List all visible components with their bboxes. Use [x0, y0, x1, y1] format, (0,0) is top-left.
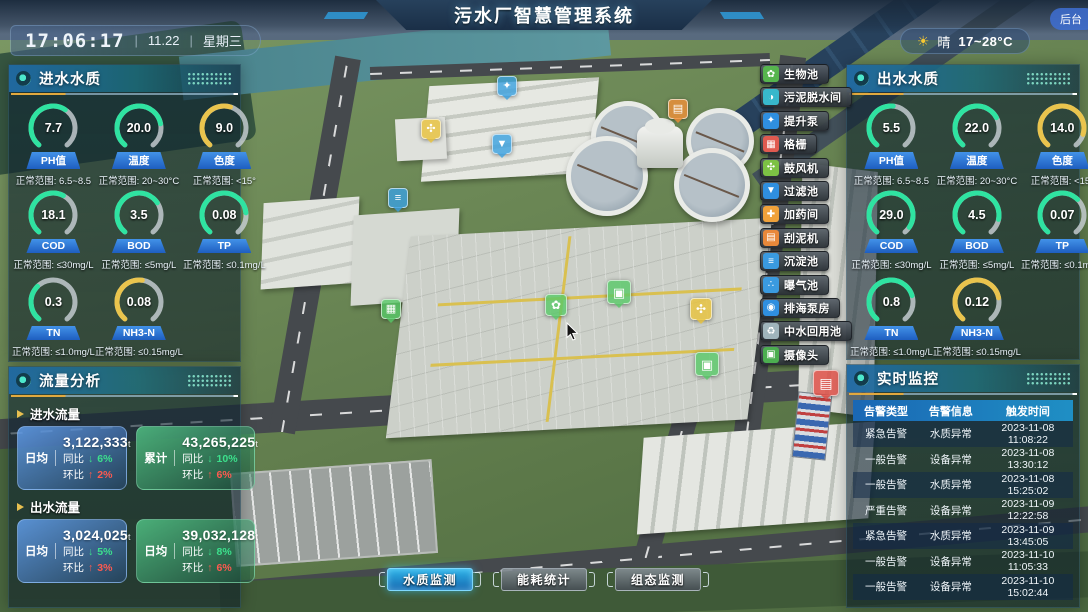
camera-marker-icon-2[interactable]: ▣ [695, 352, 719, 376]
gauge-normal-range: 正常范围: ≤0.15mg/L [933, 344, 1021, 358]
temperature-range: 17~28°C [958, 34, 1013, 49]
app-title: 污水厂智慧管理系统 [454, 2, 634, 28]
gauge-value: 7.7 [27, 102, 79, 154]
gauge-value: 20.0 [113, 102, 165, 154]
alarm-time: 2023-11-10 15:02:44 [983, 575, 1073, 599]
gauge: 0.08 NH3-N 正常范围: ≤0.15mg/L [95, 276, 183, 363]
gauge-ring: 18.1 [27, 189, 79, 241]
gauge-normal-range: 正常范围: ≤0.1mg/L [1021, 257, 1088, 271]
separator: | [135, 33, 138, 48]
alarm-info: 水质异常 [919, 528, 983, 543]
panel-header-icon [16, 373, 31, 388]
dosing-room-icon: ✚ [763, 206, 779, 222]
gauge-label: 色度 [197, 152, 251, 169]
arrow-down-icon: ↓ [207, 453, 212, 465]
panel-header-dots [187, 374, 233, 387]
filter-pool-icon: ▼ [763, 183, 779, 199]
clarifier-tank [566, 136, 648, 216]
flow-stat: 同比↓8% [182, 544, 246, 559]
center-hub-building [637, 126, 683, 168]
alarm-row: 紧急告警 水质异常 2023-11-08 11:08:22 [853, 421, 1073, 447]
arrow-up-icon: ↑ [88, 469, 93, 481]
gauge: 20.0 温度 正常范围: 20~30°C [95, 102, 183, 189]
panel-title: 实时监控 [877, 368, 939, 389]
facility-button-dosing-room[interactable]: ✚ 加药间 [760, 204, 829, 224]
panel-header: 流量分析 [9, 367, 240, 394]
gauge-label: PH值 [26, 152, 80, 169]
backstage-button[interactable]: 后台 [1050, 8, 1088, 30]
facility-button-filter-pool[interactable]: ▼ 过滤池 [760, 181, 829, 201]
alarm-type: 一般告警 [853, 579, 919, 594]
flow-stat: 同比↓10% [182, 451, 246, 466]
alarm-type: 紧急告警 [853, 528, 919, 543]
facility-button-bio-pool[interactable]: ✿ 生物池 [760, 64, 829, 84]
weather-widget: ☀ 晴 17~28°C [900, 28, 1030, 54]
flow-card-label: 日均 [144, 543, 175, 559]
flow-value: 43,265,225t [182, 434, 246, 450]
flow-stat: 环比↑6% [182, 560, 246, 575]
gauge-value: 0.08 [198, 189, 250, 241]
facility-button-stack: ✿ 生物池◑ 污泥脱水间✦ 提升泵▦ 格栅✣ 鼓风机▼ 过滤池✚ 加药间▤ 刮泥… [760, 64, 852, 368]
outlet-quality-panel: 出水水质 5.5 PH值 正常范围: 6.5~8.5 22.0 温度 正常范围:… [846, 64, 1080, 360]
title-wing-right [720, 12, 764, 19]
flow-card: 日均 3,122,333t 同比↓6% 环比↑2% [17, 426, 127, 490]
gauge-value: 0.07 [1036, 189, 1088, 241]
alarm-time: 2023-11-09 12:22:58 [983, 498, 1073, 522]
gauge-normal-range: 正常范围: ≤0.1mg/L [183, 257, 266, 271]
alarm-time: 2023-11-08 13:30:12 [983, 447, 1073, 471]
dashboard-root: ✦✣▼▤≡▦✿▣✣▣▤ 污水厂智慧管理系统 17:06:17 | 11.22 |… [0, 0, 1088, 612]
arrow-down-icon: ↓ [88, 453, 93, 465]
facility-button-label: 沉淀池 [784, 253, 819, 269]
gauge-normal-range: 正常范围: 6.5~8.5 [854, 173, 929, 187]
facility-button-label: 摄像头 [784, 347, 819, 363]
gauge-label: COD [864, 239, 918, 253]
grid-screen-marker-icon[interactable]: ▦ [381, 299, 401, 319]
gauge-normal-range: 正常范围: 20~30°C [99, 173, 180, 187]
gauge-label: COD [26, 239, 80, 253]
gauge-value: 0.12 [951, 276, 1003, 328]
gauge: 4.5 BOD 正常范围: ≤5mg/L [933, 189, 1021, 276]
gauge: 3.5 BOD 正常范围: ≤5mg/L [95, 189, 183, 276]
sea-pump-house-icon: ◉ [763, 300, 779, 316]
alarm-time: 2023-11-08 15:25:02 [983, 473, 1073, 497]
gauge-ring: 0.3 [27, 276, 79, 328]
facility-button-sea-pump-house[interactable]: ◉ 排海泵房 [760, 298, 840, 318]
gauge-value: 0.3 [27, 276, 79, 328]
bottom-tab[interactable]: 组态监测 [615, 568, 701, 591]
facility-button-blower[interactable]: ✣ 鼓风机 [760, 158, 829, 178]
gauge-label: 色度 [1035, 152, 1088, 169]
panel-header-icon [854, 371, 869, 386]
datetime-panel: 17:06:17 | 11.22 | 星期三 [10, 25, 261, 56]
alarm-info: 设备异常 [919, 503, 983, 518]
gauge-value: 18.1 [27, 189, 79, 241]
gauge-label: 温度 [112, 152, 166, 169]
alarm-row: 严重告警 设备异常 2023-11-09 12:22:58 [853, 498, 1073, 524]
gauge: 22.0 温度 正常范围: 20~30°C [933, 102, 1021, 189]
gauge-value: 3.5 [113, 189, 165, 241]
gauge-ring: 0.07 [1036, 189, 1088, 241]
flow-card: 日均 39,032,128t 同比↓8% 环比↑6% [136, 519, 254, 583]
mud-scraper-icon: ▤ [763, 230, 779, 246]
alarm-info: 水质异常 [919, 477, 983, 492]
gauge-normal-range: 正常范围: ≤30mg/L [851, 257, 931, 271]
bottom-tab[interactable]: 能耗统计 [501, 568, 587, 591]
flow-value: 3,122,333t [63, 434, 119, 450]
flow-stat: 同比↓6% [63, 451, 119, 466]
gauge-ring: 3.5 [113, 189, 165, 241]
facility-button-label: 刮泥机 [784, 230, 819, 246]
gauge-normal-range: 正常范围: ≤5mg/L [101, 257, 176, 271]
facility-button-lift-pump[interactable]: ✦ 提升泵 [760, 111, 829, 131]
weather-condition: 晴 [937, 32, 950, 51]
blower-marker-icon[interactable]: ✣ [421, 119, 441, 139]
gauge-normal-range: 正常范围: 20~30°C [937, 173, 1018, 187]
facility-button-label: 生物池 [784, 66, 819, 82]
realtime-monitoring-panel: 实时监控 告警类型 告警信息 触发时间 紧急告警 水质异常 2023-11-08… [846, 364, 1080, 608]
panel-title: 进水水质 [39, 68, 101, 89]
panel-header-icon [854, 71, 869, 86]
gauge-normal-range: 正常范围: ≤0.15mg/L [95, 344, 183, 358]
bottom-tab-bar: 水质监测能耗统计组态监测 [387, 568, 701, 591]
panel-header-dots [1026, 72, 1072, 85]
gauge-normal-range: 正常范围: 6.5~8.5 [16, 173, 91, 187]
gauge-ring: 7.7 [27, 102, 79, 154]
panel-header: 实时监控 [847, 365, 1079, 392]
flow-value: 3,024,025t [63, 527, 119, 543]
gauge: 0.08 TP 正常范围: ≤0.1mg/L [183, 189, 266, 276]
gauge-ring: 0.12 [951, 276, 1003, 328]
panel-header: 出水水质 [847, 65, 1079, 92]
facility-button-label: 排海泵房 [784, 300, 830, 316]
panel-header-underline [11, 395, 238, 397]
parking-lot [230, 459, 438, 567]
gauge: 9.0 色度 正常范围: <15° [183, 102, 266, 189]
flow-card-label: 日均 [25, 543, 56, 559]
alarm-info: 水质异常 [919, 426, 983, 441]
mouse-cursor [566, 322, 580, 341]
app-title-banner: 污水厂智慧管理系统 [376, 0, 712, 30]
gauge-ring: 0.8 [865, 276, 917, 328]
flow-analysis-panel: 流量分析 进水流量日均 3,122,333t 同比↓6% 环比↑2% 累计 43… [8, 366, 241, 608]
bottom-tab[interactable]: 水质监测 [387, 568, 473, 591]
triangle-icon [17, 503, 24, 511]
gauge-label: NH3-N [112, 326, 166, 340]
facility-button-sedimentation-pool[interactable]: ≡ 沉淀池 [760, 251, 829, 271]
column-alarm-info: 告警信息 [919, 403, 983, 419]
gauge-normal-range: 正常范围: ≤1.0mg/L [12, 344, 95, 358]
separator: | [189, 33, 192, 48]
panel-header-dots [187, 72, 233, 85]
inlet-quality-panel: 进水水质 7.7 PH值 正常范围: 6.5~8.5 20.0 温度 正常范围:… [8, 64, 241, 362]
clarifier-tank [674, 148, 750, 222]
gauge-label: PH值 [864, 152, 918, 169]
gauge-label: TN [26, 326, 80, 340]
gauge-ring: 0.08 [113, 276, 165, 328]
panel-title: 流量分析 [39, 370, 101, 391]
gauge-value: 9.0 [198, 102, 250, 154]
gauge-ring: 5.5 [865, 102, 917, 154]
gauge-ring: 29.0 [865, 189, 917, 241]
gauge-ring: 20.0 [113, 102, 165, 154]
arrow-up-icon: ↑ [88, 562, 93, 574]
sedimentation-pool-icon: ≡ [763, 253, 779, 269]
facility-button-label: 曝气池 [784, 277, 819, 293]
alarm-type: 一般告警 [853, 452, 919, 467]
gauge: 0.8 TN 正常范围: ≤1.0mg/L [850, 276, 933, 363]
flow-stat: 同比↓5% [63, 544, 119, 559]
alarm-type: 一般告警 [853, 477, 919, 492]
arrow-down-icon: ↓ [88, 546, 93, 558]
gauge-value: 0.08 [113, 276, 165, 328]
gauge-label: TP [197, 239, 251, 253]
blower-marker-icon-2[interactable]: ✣ [690, 298, 712, 320]
flow-card-label: 累计 [144, 450, 175, 466]
equipment-rack [792, 391, 833, 460]
bio-pool-marker-icon[interactable]: ✿ [545, 294, 567, 316]
gauge-ring: 0.08 [198, 189, 250, 241]
gauge-ring: 14.0 [1036, 102, 1088, 154]
sedimentation-marker-icon[interactable]: ≡ [388, 188, 408, 208]
filter-pool-marker-icon[interactable]: ▼ [492, 134, 512, 154]
gauge: 14.0 色度 正常范围: <15° [1021, 102, 1088, 189]
facility-button-label: 提升泵 [784, 113, 819, 129]
facility-button-water-reuse-pool[interactable]: ♻ 中水回用池 [760, 321, 852, 341]
flow-card: 日均 3,024,025t 同比↓5% 环比↑3% [17, 519, 127, 583]
alarm-table-header: 告警类型 告警信息 触发时间 [853, 400, 1073, 421]
gauge-ring: 9.0 [198, 102, 250, 154]
facility-button-label: 格栅 [784, 136, 807, 152]
alarm-type: 紧急告警 [853, 426, 919, 441]
gauge-label: 温度 [950, 152, 1004, 169]
facility-button-label: 加药间 [784, 206, 819, 222]
flow-section-label: 进水流量 [17, 404, 232, 423]
gauge-value: 4.5 [951, 189, 1003, 241]
gauge-ring: 22.0 [951, 102, 1003, 154]
gauge: 0.3 TN 正常范围: ≤1.0mg/L [12, 276, 95, 363]
flow-value: 39,032,128t [182, 527, 246, 543]
gauge-normal-range: 正常范围: <15° [193, 173, 256, 187]
alarm-type: 严重告警 [853, 503, 919, 518]
lift-pump-marker-icon[interactable]: ✦ [497, 76, 517, 96]
sun-icon: ☀ [917, 33, 930, 50]
facility-button-label: 污泥脱水间 [784, 89, 842, 105]
alarm-table: 告警类型 告警信息 触发时间 紧急告警 水质异常 2023-11-08 11:0… [847, 395, 1079, 600]
clock: 17:06:17 [25, 30, 125, 52]
title-wing-left [324, 12, 368, 19]
gauge-label: BOD [950, 239, 1004, 253]
gauge-label: BOD [112, 239, 166, 253]
alarm-row: 一般告警 设备异常 2023-11-10 11:05:33 [853, 549, 1073, 575]
flow-card: 累计 43,265,225t 同比↓10% 环比↑6% [136, 426, 254, 490]
blower-icon: ✣ [763, 160, 779, 176]
gauge-value: 0.8 [865, 276, 917, 328]
grid-screen-icon: ▦ [763, 136, 779, 152]
aeration-pool-icon: ∴ [763, 277, 779, 293]
alarm-time: 2023-11-10 11:05:33 [983, 549, 1073, 573]
alarm-time: 2023-11-09 13:45:05 [983, 524, 1073, 548]
flow-card-label: 日均 [25, 450, 56, 466]
gauge-value: 5.5 [865, 102, 917, 154]
panel-header-dots [1026, 372, 1072, 385]
facility-button-sludge-dewatering[interactable]: ◑ 污泥脱水间 [760, 87, 852, 107]
alarm-info: 设备异常 [919, 452, 983, 467]
gauge-label: TP [1035, 239, 1088, 253]
alarm-info: 设备异常 [919, 579, 983, 594]
panel-header: 进水水质 [9, 65, 240, 92]
sludge-dewatering-icon: ◑ [763, 89, 779, 105]
water-reuse-pool-icon: ♻ [763, 323, 779, 339]
date: 11.22 [148, 33, 180, 48]
flow-stat: 环比↑2% [63, 467, 119, 482]
gauge: 7.7 PH值 正常范围: 6.5~8.5 [12, 102, 95, 189]
weekday: 星期三 [203, 31, 242, 50]
camera-icon: ▣ [763, 347, 779, 363]
alarm-row: 一般告警 设备异常 2023-11-10 15:02:44 [853, 574, 1073, 600]
gauge: 0.07 TP 正常范围: ≤0.1mg/L [1021, 189, 1088, 276]
arrow-up-icon: ↑ [207, 562, 212, 574]
gauge-normal-range: 正常范围: <15° [1031, 173, 1088, 187]
arrow-up-icon: ↑ [207, 469, 212, 481]
gauge-value: 14.0 [1036, 102, 1088, 154]
triangle-icon [17, 410, 24, 418]
column-alarm-type: 告警类型 [853, 403, 919, 419]
bio-pool-icon: ✿ [763, 66, 779, 82]
alarm-row: 一般告警 水质异常 2023-11-08 15:25:02 [853, 472, 1073, 498]
gauge-ring: 4.5 [951, 189, 1003, 241]
alarm-row: 紧急告警 水质异常 2023-11-09 13:45:05 [853, 523, 1073, 549]
facility-button-label: 鼓风机 [784, 160, 819, 176]
gauge-label: NH3-N [950, 326, 1004, 340]
facility-button-label: 过滤池 [784, 183, 819, 199]
alarm-row: 一般告警 设备异常 2023-11-08 13:30:12 [853, 447, 1073, 473]
facility-button-label: 中水回用池 [784, 323, 842, 339]
alarm-time: 2023-11-08 11:08:22 [983, 422, 1073, 446]
gauge: 18.1 COD 正常范围: ≤30mg/L [12, 189, 95, 276]
gauge-value: 22.0 [951, 102, 1003, 154]
gauge: 5.5 PH值 正常范围: 6.5~8.5 [850, 102, 933, 189]
facility-button-mud-scraper[interactable]: ▤ 刮泥机 [760, 228, 829, 248]
alarm-info: 设备异常 [919, 554, 983, 569]
gauge-normal-range: 正常范围: ≤30mg/L [13, 257, 93, 271]
gauge: 29.0 COD 正常范围: ≤30mg/L [850, 189, 933, 276]
panel-header-icon [16, 71, 31, 86]
gauge-value: 29.0 [865, 189, 917, 241]
facility-button-camera[interactable]: ▣ 摄像头 [760, 345, 829, 365]
lift-pump-icon: ✦ [763, 113, 779, 129]
gauge-normal-range: 正常范围: ≤5mg/L [939, 257, 1014, 271]
facility-button-aeration-pool[interactable]: ∴ 曝气池 [760, 275, 829, 295]
building [637, 422, 875, 535]
flow-section-label: 出水流量 [17, 497, 232, 516]
alarm-type: 一般告警 [853, 554, 919, 569]
gauge: 0.12 NH3-N 正常范围: ≤0.15mg/L [933, 276, 1021, 363]
building [261, 196, 360, 289]
arrow-down-icon: ↓ [207, 546, 212, 558]
camera-marker-icon[interactable]: ▣ [607, 280, 631, 304]
panel-title: 出水水质 [877, 68, 939, 89]
flow-stat: 环比↑3% [63, 560, 119, 575]
column-trigger-time: 触发时间 [983, 403, 1073, 419]
gauge-normal-range: 正常范围: ≤1.0mg/L [850, 344, 933, 358]
facility-button-grid-screen[interactable]: ▦ 格栅 [760, 134, 817, 154]
alarm-marker-icon[interactable]: ▤ [813, 370, 839, 396]
flow-stat: 环比↑6% [182, 467, 246, 482]
scraper-marker-icon[interactable]: ▤ [668, 99, 688, 119]
gauge-label: TN [864, 326, 918, 340]
